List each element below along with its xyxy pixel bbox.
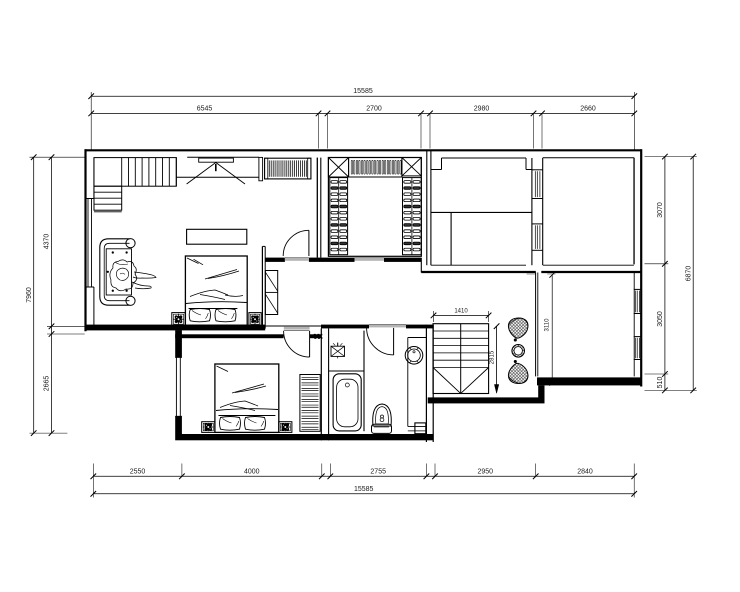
svg-text:3050: 3050 [657,311,664,327]
svg-text:4000: 4000 [244,468,260,475]
svg-text:4370: 4370 [44,234,51,250]
svg-text:2755: 2755 [370,468,386,475]
svg-text:7960: 7960 [26,287,33,303]
svg-text:2980: 2980 [474,106,490,113]
svg-text:6545: 6545 [197,106,213,113]
svg-text:6870: 6870 [685,266,692,282]
svg-text:3070: 3070 [657,202,664,218]
svg-text:2665: 2665 [44,376,51,392]
svg-text:510: 510 [657,377,664,389]
svg-text:3110: 3110 [545,318,551,332]
svg-text:2550: 2550 [130,468,146,475]
svg-text:2950: 2950 [478,468,494,475]
svg-text:15585: 15585 [354,486,374,493]
svg-text:2660: 2660 [580,106,596,113]
svg-text:1410: 1410 [454,309,468,315]
svg-text:15585: 15585 [353,88,373,95]
svg-text:2815: 2815 [490,350,496,364]
svg-text:2700: 2700 [366,106,382,113]
svg-text:2840: 2840 [577,468,593,475]
